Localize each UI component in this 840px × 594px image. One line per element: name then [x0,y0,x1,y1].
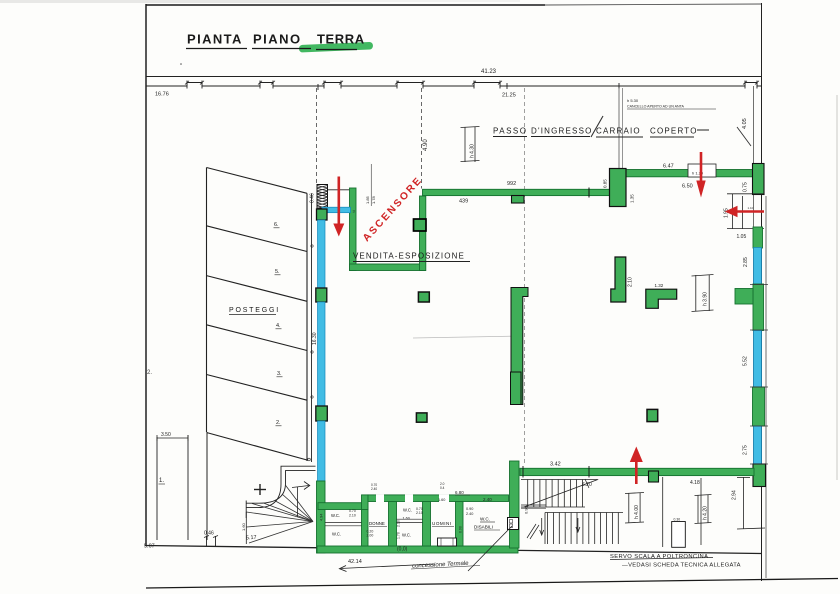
svg-text:2.: 2. [147,370,152,376]
svg-text:2.10: 2.10 [628,277,634,287]
svg-text:1.35: 1.35 [630,194,635,203]
svg-text:2.94: 2.94 [732,490,738,500]
svg-text:4.94: 4.94 [320,514,324,521]
svg-text:2.: 2. [276,420,281,426]
svg-text:h 4.20: h 4.20 [703,506,709,520]
svg-text:—VEDASI SCHEDA TECNICA ALLEGAT: —VEDASI SCHEDA TECNICA ALLEGATA [622,563,741,569]
svg-text:POSTEGGI: POSTEGGI [229,307,280,314]
svg-text:UOMINI: UOMINI [432,521,452,526]
svg-text:W.C.: W.C. [403,508,412,513]
svg-text:2.00: 2.00 [367,534,374,538]
svg-text:1.10: 1.10 [748,206,754,210]
svg-text:CARRAIO: CARRAIO [596,127,641,136]
svg-text:DISABILI: DISABILI [474,525,493,530]
svg-text:3.: 3. [277,371,282,377]
svg-text:D'INGRESSO: D'INGRESSO [531,127,593,136]
svg-text:PASSO: PASSO [493,127,527,136]
svg-text:2.75: 2.75 [743,445,749,455]
svg-text:5.07: 5.07 [144,544,155,550]
svg-text:2.40: 2.40 [371,487,377,491]
svg-text:h 5.30: h 5.30 [627,98,639,103]
svg-text:4.90: 4.90 [423,139,429,151]
svg-text:2.85: 2.85 [743,257,749,267]
svg-text:0.90: 0.90 [466,507,473,511]
svg-text:992: 992 [507,181,516,187]
svg-text:2.10: 2.10 [349,514,356,518]
svg-text:4.18: 4.18 [690,480,700,486]
svg-text:1.32: 1.32 [655,283,664,288]
svg-text:1.60: 1.60 [241,522,246,531]
svg-text:DONNE: DONNE [369,521,385,526]
svg-text:21.25: 21.25 [502,93,516,99]
svg-text:3.50: 3.50 [161,432,171,438]
svg-text:1.60: 1.60 [438,498,445,502]
svg-text:5.: 5. [275,269,280,275]
svg-text:0.4: 0.4 [440,486,445,490]
svg-text:h 3.90: h 3.90 [703,292,709,306]
svg-text:5.52: 5.52 [743,356,749,366]
svg-text:VENDITA-ESPOSIZIONE: VENDITA-ESPOSIZIONE [353,252,465,261]
svg-text:2.10: 2.10 [397,520,401,527]
svg-text:42.14: 42.14 [348,559,362,565]
svg-text:41.23: 41.23 [481,69,497,75]
svg-text:0.46: 0.46 [310,193,316,203]
svg-text:6.47: 6.47 [663,164,674,170]
svg-text:PIANTA: PIANTA [187,32,243,47]
svg-text:h 4.00: h 4.00 [634,505,640,519]
svg-text:2.40: 2.40 [483,497,492,502]
svg-text:6.: 6. [274,222,279,228]
svg-text:6.80: 6.80 [455,490,464,495]
svg-text:PIANO: PIANO [253,32,302,47]
svg-text:4.05: 4.05 [742,118,748,129]
svg-text:0.30: 0.30 [674,518,681,522]
svg-text:4.: 4. [276,323,281,329]
svg-text:6.50: 6.50 [682,184,693,190]
svg-text:0.90: 0.90 [459,526,463,533]
svg-text:16.76: 16.76 [155,92,169,98]
svg-text:0.85: 0.85 [603,179,608,188]
svg-text:h 4.30: h 4.30 [470,144,476,158]
svg-text:CANCELLO APERTO AD UN ANTA: CANCELLO APERTO AD UN ANTA [627,105,685,109]
svg-text:TERRA: TERRA [317,32,365,47]
svg-text:W.C.: W.C. [331,513,340,518]
svg-text:1.85: 1.85 [365,195,370,204]
svg-text:1.: 1. [159,478,164,484]
svg-text:1.78: 1.78 [371,195,376,204]
svg-text:439: 439 [459,199,468,205]
svg-text:W.C.: W.C. [480,517,490,522]
svg-text:1.70: 1.70 [397,532,401,539]
svg-text:W.C.: W.C. [402,533,411,538]
svg-text:(0,0): (0,0) [397,547,408,553]
svg-text:3.42: 3.42 [550,462,561,468]
svg-text:0.70: 0.70 [349,509,356,513]
svg-text:1.60: 1.60 [403,517,410,521]
svg-text:5.17: 5.17 [246,535,257,542]
svg-text:0.75: 0.75 [743,182,749,192]
svg-text:W.C.: W.C. [332,532,341,537]
svg-text:2.40: 2.40 [466,512,473,516]
svg-text:1.05: 1.05 [737,234,747,240]
svg-text:COPERTO: COPERTO [650,127,698,136]
svg-text:16.30: 16.30 [312,332,318,345]
svg-text:0.96: 0.96 [524,505,529,514]
svg-text:2.10: 2.10 [416,511,423,515]
